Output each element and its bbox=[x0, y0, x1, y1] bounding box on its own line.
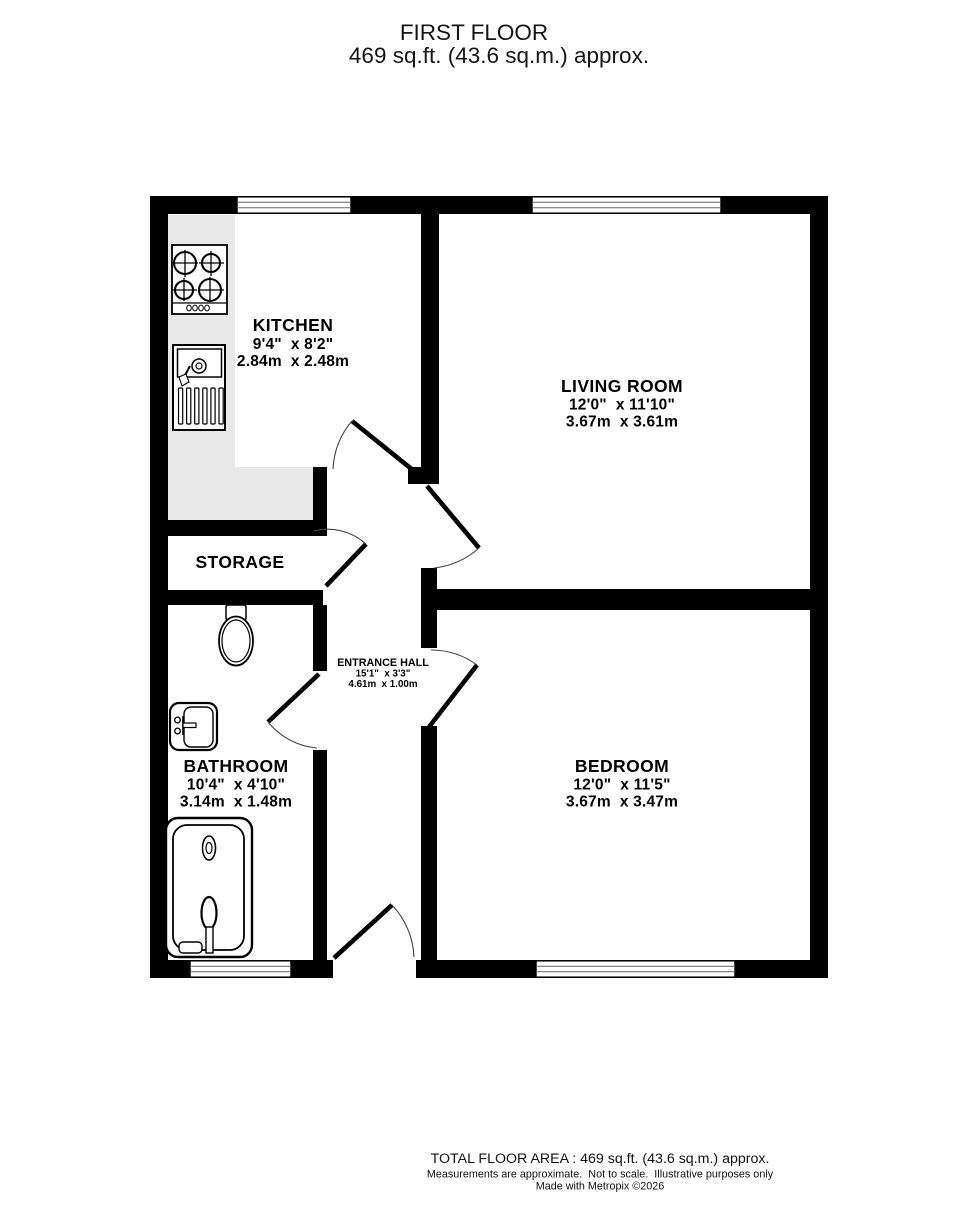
living-room-door bbox=[427, 486, 479, 568]
window-bedroom bbox=[536, 961, 735, 977]
bathroom-door bbox=[268, 674, 319, 748]
entrance-hall-dims-imperial: 15'1" x 3'3" bbox=[356, 669, 411, 680]
entrance-door-swing-arc bbox=[392, 905, 414, 957]
storage-door-leaf bbox=[326, 544, 366, 586]
kitchen-door bbox=[333, 421, 414, 471]
kitchen-dims-metric: 2.84m x 2.48m bbox=[237, 353, 349, 370]
bathtub-step bbox=[179, 942, 202, 953]
bedroom-label: BEDROOM 12'0" x 11'5" 3.67m x 3.47m bbox=[566, 756, 678, 811]
bathroom-dims-imperial: 10'4" x 4'10" bbox=[187, 777, 285, 794]
wall-right bbox=[810, 196, 828, 978]
kitchen-sink-drain-center bbox=[196, 363, 202, 369]
living-room-dims-metric: 3.67m x 3.61m bbox=[566, 414, 678, 431]
bathroom-sink-spout bbox=[183, 723, 196, 728]
living-room-name: LIVING ROOM bbox=[561, 376, 683, 396]
kitchen-dims-imperial: 9'4" x 8'2" bbox=[253, 336, 334, 353]
plan-title-floor: FIRST FLOOR bbox=[400, 20, 548, 45]
window-kitchen bbox=[237, 197, 351, 213]
bathtub-icon bbox=[166, 818, 252, 957]
window-bedroom-frame bbox=[536, 961, 735, 977]
bathroom-name: BATHROOM bbox=[184, 756, 289, 776]
bedroom-name: BEDROOM bbox=[575, 756, 669, 776]
toilet-icon bbox=[219, 605, 253, 666]
wall-kitchen-bottom bbox=[150, 520, 327, 536]
kitchen-door-swing-arc bbox=[333, 421, 352, 469]
window-living-room bbox=[532, 197, 721, 213]
kitchen-door-leaf bbox=[352, 421, 414, 471]
window-living-frame bbox=[532, 197, 721, 213]
bedroom-dims-imperial: 12'0" x 11'5" bbox=[573, 777, 670, 794]
bathroom-dims-metric: 3.14m x 1.48m bbox=[180, 794, 292, 811]
kitchen-name: KITCHEN bbox=[253, 315, 334, 335]
bathtub-tap bbox=[202, 897, 217, 929]
storage-label: STORAGE bbox=[195, 552, 284, 572]
living-room-door-leaf bbox=[427, 486, 479, 548]
bedroom-dims-metric: 3.67m x 3.47m bbox=[566, 794, 678, 811]
kitchen-label: KITCHEN 9'4" x 8'2" 2.84m x 2.48m bbox=[237, 315, 349, 370]
toilet-bowl-inner bbox=[222, 620, 250, 662]
bedroom-door-leaf bbox=[429, 665, 477, 727]
wall-hall-left-stub bbox=[313, 467, 327, 520]
window-bathroom bbox=[190, 961, 291, 977]
bathroom-sink-tap-knob bbox=[175, 717, 181, 723]
plan-title: FIRST FLOOR 469 sq.ft. (43.6 sq.m.) appr… bbox=[349, 20, 649, 68]
wall-bathroom-right-upper bbox=[313, 605, 327, 671]
plan-title-area: 469 sq.ft. (43.6 sq.m.) approx. bbox=[349, 43, 649, 68]
bathroom-sink-tap-knob bbox=[175, 728, 181, 734]
entrance-hall-name: ENTRANCE HALL bbox=[337, 657, 429, 669]
wall-storage-bottom bbox=[150, 590, 323, 605]
wall-living-bedroom-divider bbox=[421, 589, 810, 610]
storage-name: STORAGE bbox=[195, 552, 284, 572]
living-room-label: LIVING ROOM 12'0" x 11'10" 3.67m x 3.61m bbox=[561, 376, 683, 431]
credit: Made with Metropix ©2026 bbox=[536, 1181, 665, 1193]
bathroom-door-leaf bbox=[268, 674, 319, 722]
entrance-opening bbox=[333, 959, 416, 980]
wall-bedroom-left-lower bbox=[421, 726, 437, 960]
entrance-door-leaf bbox=[334, 905, 392, 958]
total-floor-area: TOTAL FLOOR AREA : 469 sq.ft. (43.6 sq.m… bbox=[431, 1151, 770, 1167]
entrance-hall-label: ENTRANCE HALL 15'1" x 3'3" 4.61m x 1.00m bbox=[337, 657, 429, 690]
bedroom-door bbox=[429, 650, 477, 727]
living-room-door-swing-arc bbox=[434, 548, 479, 568]
bedroom-door-swing-arc bbox=[431, 650, 477, 665]
hob-icon bbox=[172, 245, 227, 314]
window-bathroom-frame bbox=[190, 961, 291, 977]
bathroom-sink-icon bbox=[170, 703, 217, 750]
bathroom-label: BATHROOM 10'4" x 4'10" 3.14m x 1.48m bbox=[180, 756, 292, 811]
entrance-door bbox=[334, 905, 414, 958]
kitchen-sink-icon bbox=[173, 345, 225, 430]
living-room-dims-imperial: 12'0" x 11'10" bbox=[569, 397, 675, 414]
footer: TOTAL FLOOR AREA : 469 sq.ft. (43.6 sq.m… bbox=[427, 1151, 774, 1193]
storage-door bbox=[313, 529, 366, 586]
bathtub-overflow-center bbox=[206, 843, 212, 854]
entrance-hall-dims-metric: 4.61m x 1.00m bbox=[348, 679, 417, 690]
window-kitchen-frame bbox=[237, 197, 351, 213]
wall-kitchen-living-divider bbox=[421, 196, 439, 484]
disclaimer: Measurements are approximate. Not to sca… bbox=[427, 1169, 774, 1181]
floor-plan: FIRST FLOOR 469 sq.ft. (43.6 sq.m.) appr… bbox=[0, 0, 980, 1225]
bathtub-tap-stem bbox=[206, 927, 213, 953]
wall-bathroom-right-lower bbox=[313, 750, 327, 960]
bathroom-door-swing-arc bbox=[268, 722, 317, 748]
